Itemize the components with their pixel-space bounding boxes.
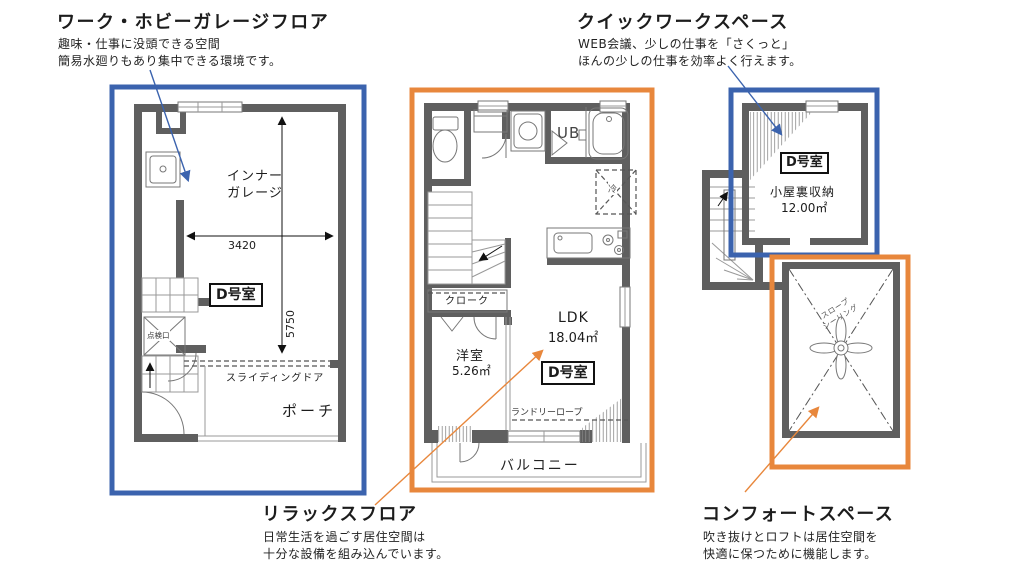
label-unit-loft: D号室 <box>780 152 829 174</box>
plan-line-art <box>0 0 1024 576</box>
floor-plan-infographic: ワーク・ホビーガレージフロア 趣味・仕事に没頭できる空間 簡易水廻りもあり集中で… <box>0 0 1024 576</box>
label-balcony: バルコニー <box>500 455 580 475</box>
label-inner-garage-line1: インナー <box>205 168 305 185</box>
label-ldk-area: 18.04㎡ <box>548 327 598 346</box>
label-inner-garage-line2: ガレージ <box>205 185 305 202</box>
relax-stairs <box>428 192 505 284</box>
desc-work-garage-line1: 趣味・仕事に没頭できる空間 <box>58 36 282 53</box>
title-quick-work: クイックワークスペース <box>577 8 789 34</box>
label-inner-garage: インナー ガレージ <box>205 168 305 202</box>
garage-sink <box>146 152 180 187</box>
desc-quick-work-line1: WEB会議、少しの仕事を「さくっと」 <box>578 36 802 53</box>
label-ldk: LDK <box>558 310 589 326</box>
desc-relax: 日常生活を過ごす居住空間は 十分な設備を組み込んでいます。 <box>263 529 449 563</box>
label-dim-3420: 3420 <box>228 239 256 252</box>
desc-quick-work-line2: ほんの少しの仕事を効率よく行えます。 <box>578 53 802 70</box>
washing-machine-pan <box>511 111 545 151</box>
arrow-comfort <box>745 408 818 492</box>
desc-relax-line2: 十分な設備を組み込んでいます。 <box>263 546 449 563</box>
label-cloak: クローク <box>445 292 489 307</box>
desc-comfort-line2: 快適に保つために機能します。 <box>703 546 878 563</box>
label-dim-5750: 5750 <box>284 310 297 338</box>
label-sliding-door: スライディングドア <box>226 369 324 384</box>
label-unit-relax: D号室 <box>541 361 595 385</box>
label-porch: ポーチ <box>282 400 336 421</box>
ceiling-fan <box>810 317 872 379</box>
label-attic-area: 12.00㎡ <box>781 199 827 216</box>
label-attic-storage: 小屋裏収納 <box>770 183 835 200</box>
title-relax: リラックスフロア <box>262 500 417 526</box>
desc-work-garage: 趣味・仕事に没頭できる空間 簡易水廻りもあり集中できる環境です。 <box>58 36 282 70</box>
kitchen <box>547 228 630 258</box>
label-west-room-area: 5.26㎡ <box>452 362 491 379</box>
label-inspection-hatch: 点検口 <box>147 330 170 341</box>
garage-dimension-arrows <box>188 118 332 352</box>
label-unit-bath: UB <box>557 124 580 142</box>
desc-relax-line1: 日常生活を過ごす居住空間は <box>263 529 449 546</box>
toilet <box>433 117 458 162</box>
title-work-garage: ワーク・ホビーガレージフロア <box>57 8 329 34</box>
desc-quick-work: WEB会議、少しの仕事を「さくっと」 ほんの少しの仕事を効率よく行えます。 <box>578 36 802 70</box>
sliding-door-line <box>184 361 330 366</box>
garage-door-window <box>178 102 242 112</box>
desc-comfort-line1: 吹き抜けとロフトは居住空間を <box>703 529 878 546</box>
desc-comfort: 吹き抜けとロフトは居住空間を 快適に保つために機能します。 <box>703 529 878 563</box>
desc-work-garage-line2: 簡易水廻りもあり集中できる環境です。 <box>58 53 282 70</box>
label-unit-garage: D号室 <box>209 283 263 307</box>
label-laundry-rope: ランドリーロープ <box>511 405 582 418</box>
room-divider <box>506 317 510 430</box>
label-fridge: 冷 <box>608 182 617 195</box>
title-comfort: コンフォートスペース <box>702 500 894 526</box>
